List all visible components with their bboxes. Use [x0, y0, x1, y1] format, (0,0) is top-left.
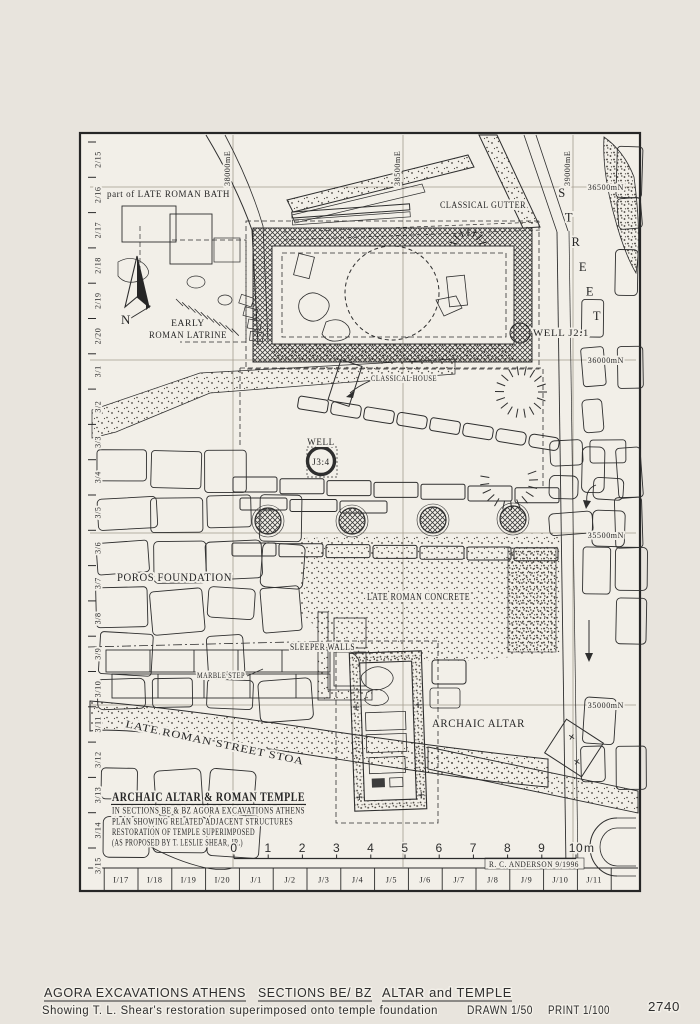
column-drum	[420, 507, 446, 533]
street-label-letter: E	[586, 284, 594, 298]
scale-number: 5	[401, 841, 408, 855]
scale-number: 1	[265, 841, 272, 855]
scale-number: 6	[436, 841, 443, 855]
label-classical-gutter: CLASSICAL GUTTER	[440, 201, 526, 211]
grid-row-label: 3/14	[94, 822, 103, 839]
grid-column-label: J/7	[453, 876, 464, 885]
mosaic-band	[272, 344, 514, 361]
grid-row-label: 3/1	[94, 365, 103, 377]
well-j21-circle	[510, 323, 530, 343]
northing-label: 36500mN	[588, 183, 624, 192]
scale-number: 3	[333, 841, 340, 855]
easting-label: 39000mE	[563, 151, 572, 186]
column-drum	[500, 506, 526, 532]
grid-row-label: 2/15	[94, 151, 103, 168]
grid-row-label: 2/18	[94, 257, 103, 274]
label-early-roman-latrine: ROMAN LATRINE	[149, 331, 227, 341]
easting-label: 38500mE	[393, 151, 402, 186]
scale-number: 10	[569, 841, 584, 855]
grid-row-label: 3/9	[94, 648, 103, 660]
north-letter: N	[121, 312, 131, 327]
street-label-letter: T	[565, 211, 573, 225]
grid-row-label: 3/10	[94, 681, 103, 698]
grid-row-label: 3/15	[94, 857, 103, 874]
caption-drawn-scale: DRAWN 1/50	[467, 1005, 533, 1017]
title-block-line: RESTORATION OF TEMPLE SUPERIMPOSED	[112, 827, 255, 837]
grid-row-label: 3/4	[94, 471, 103, 483]
title-block-line: (AS PROPOSED BY T. LESLIE SHEAR, JR.)	[112, 838, 243, 848]
northing-label: 36000mN	[588, 356, 624, 365]
label-archaic-altar: ARCHAIC ALTAR	[432, 718, 525, 730]
concrete-pier	[508, 548, 556, 652]
scale-number: 2	[299, 841, 306, 855]
column-drum	[339, 508, 365, 534]
caption: AGORA EXCAVATIONS ATHENS SECTIONS BE/ BZ…	[42, 986, 680, 1017]
scanned-plan-page: { "plan": { "feature_labels": { "late_ro…	[0, 0, 700, 1024]
grid-row-label: 3/3	[94, 436, 103, 448]
label-poros-foundation: POROS FOUNDATION	[117, 572, 232, 584]
label-late-roman-concrete: LATE ROMAN CONCRETE	[367, 592, 470, 603]
label-well-word: WELL	[307, 437, 334, 447]
caption-print-scale: PRINT 1/100	[548, 1005, 610, 1017]
street-label-letter: E	[579, 260, 587, 274]
caption-title-segment: SECTIONS BE/ BZ	[258, 986, 372, 1000]
column-drum	[255, 508, 281, 534]
grid-column-label: I/17	[113, 876, 129, 885]
grid-column-label: J/1	[251, 876, 262, 885]
title-block-line: PLAN SHOWING RELATED ADJACENT STRUCTURES	[112, 817, 293, 827]
scale-number: 7	[470, 841, 477, 855]
grid-column-label: J/9	[521, 876, 532, 885]
grid-column-label: I/20	[215, 876, 231, 885]
label-well-j34: J3:4	[312, 457, 329, 467]
grid-row-label: 3/2	[94, 401, 103, 413]
grid-row-label: 3/7	[94, 577, 103, 589]
scale-number: 4	[367, 841, 374, 855]
grid-column-label: I/19	[181, 876, 197, 885]
grid-row-label: 3/11	[94, 716, 103, 732]
grid-row-label: 2/20	[94, 328, 103, 345]
grid-column-label: J/5	[386, 876, 397, 885]
street-label-letter: T	[593, 309, 601, 323]
title-block-title: ARCHAIC ALTAR & ROMAN TEMPLE	[112, 790, 305, 804]
label-late-roman-bath: part of LATE ROMAN BATH	[107, 189, 230, 200]
label-sleeper-walls: SLEEPER WALLS	[290, 642, 355, 652]
credit-text: R. C. ANDERSON 9/1996	[489, 860, 579, 869]
grid-row-label: 3/8	[94, 612, 103, 624]
street-label-letter: S	[558, 186, 566, 200]
scale-number: 9	[538, 841, 545, 855]
caption-title-segment: ALTAR and TEMPLE	[382, 986, 512, 1000]
scale-number: 0	[230, 841, 237, 855]
grid-row-label: 3/12	[94, 751, 103, 768]
grid-column-label: J/8	[487, 876, 498, 885]
grid-column-label: J/6	[420, 876, 431, 885]
scale-number: 8	[504, 841, 511, 855]
label-classical-house: CLASSICAL HOUSE	[371, 374, 437, 383]
grid-row-label: 3/5	[94, 506, 103, 518]
easting-label: 38000mE	[223, 151, 232, 186]
caption-subtitle: Showing T. L. Shear's restoration superi…	[42, 1005, 438, 1017]
catalog-number: 2740	[648, 999, 680, 1014]
grid-row-label: 3/6	[94, 542, 103, 554]
northing-label: 35000mN	[588, 701, 624, 710]
grid-column-label: J/4	[352, 876, 363, 885]
street-label-letter: R	[572, 235, 581, 249]
grid-column-label: J/10	[552, 876, 568, 885]
grid-row-label: 2/19	[94, 292, 103, 309]
northing-label: 35500mN	[588, 531, 624, 540]
grid-row-label: 3/13	[94, 787, 103, 804]
scale-unit: m	[584, 841, 595, 855]
title-block-line: IN SECTIONS BE & BZ AGORA EXCAVATIONS AT…	[112, 806, 305, 816]
label-well-j21: WELL J2:1	[533, 328, 589, 338]
grid-row-label: 2/17	[94, 222, 103, 239]
label-early-roman-latrine: EARLY	[171, 319, 205, 329]
grid-column-label: J/2	[284, 876, 295, 885]
excavation-plan-drawing: part of LATE ROMAN BATH CLASSICAL GUTTER…	[0, 0, 700, 1024]
grid-column-label: I/18	[147, 876, 163, 885]
caption-title-segment: AGORA EXCAVATIONS ATHENS	[44, 986, 246, 1000]
label-marble-step: MARBLE STEP	[197, 671, 245, 680]
grid-column-label: J/11	[586, 876, 602, 885]
grid-column-label: J/3	[318, 876, 329, 885]
grid-row-label: 2/16	[94, 186, 103, 203]
